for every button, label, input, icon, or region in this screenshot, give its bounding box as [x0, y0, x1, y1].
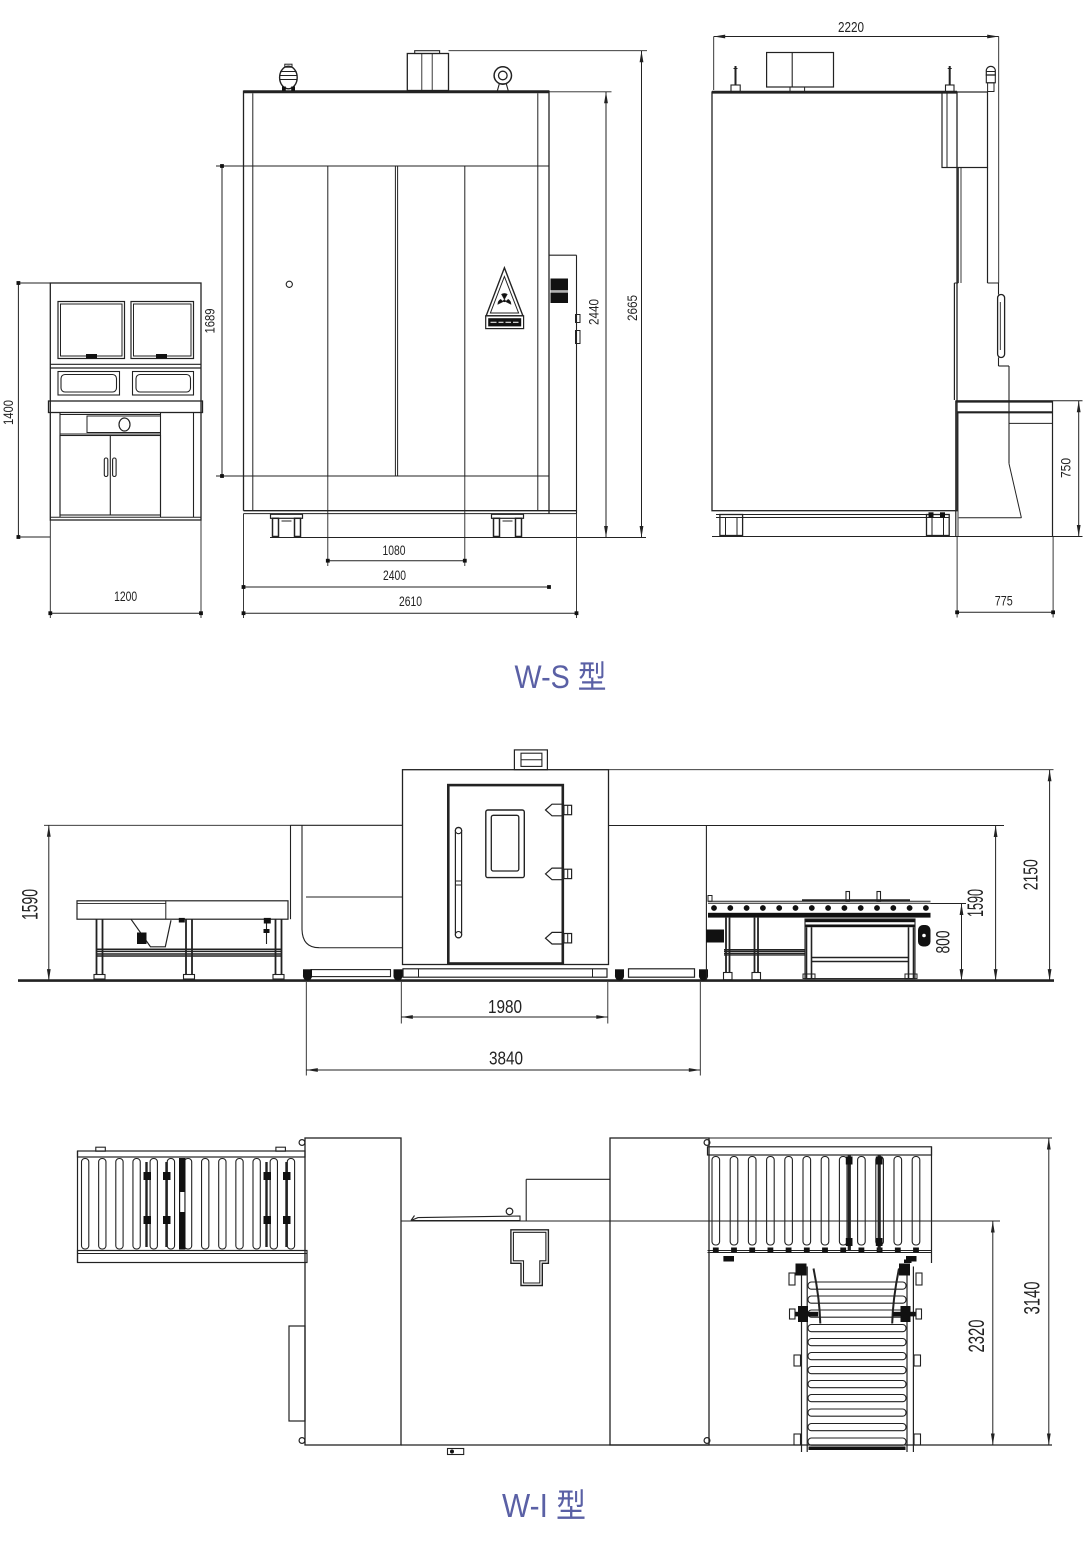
svg-text:1980: 1980 [488, 996, 522, 1017]
svg-text:2220: 2220 [838, 20, 864, 36]
svg-text:W-S 型: W-S 型 [515, 659, 607, 695]
svg-text:800: 800 [933, 931, 954, 954]
svg-text:750: 750 [1058, 458, 1074, 478]
svg-text:3140: 3140 [1020, 1282, 1045, 1315]
svg-text:1080: 1080 [383, 542, 406, 558]
svg-text:1590: 1590 [963, 889, 988, 917]
svg-text:1689: 1689 [202, 308, 218, 333]
svg-text:2665: 2665 [624, 295, 640, 321]
svg-text:775: 775 [995, 593, 1013, 609]
svg-text:2320: 2320 [964, 1320, 989, 1353]
svg-text:2150: 2150 [1021, 859, 1043, 890]
svg-text:1590: 1590 [18, 889, 43, 920]
svg-text:1200: 1200 [114, 588, 137, 604]
svg-text:1400: 1400 [0, 400, 16, 425]
svg-text:W-I 型: W-I 型 [502, 1487, 586, 1524]
svg-text:2440: 2440 [586, 299, 602, 325]
svg-text:2610: 2610 [399, 593, 422, 609]
svg-text:2400: 2400 [383, 567, 406, 583]
svg-text:3840: 3840 [489, 1048, 523, 1069]
